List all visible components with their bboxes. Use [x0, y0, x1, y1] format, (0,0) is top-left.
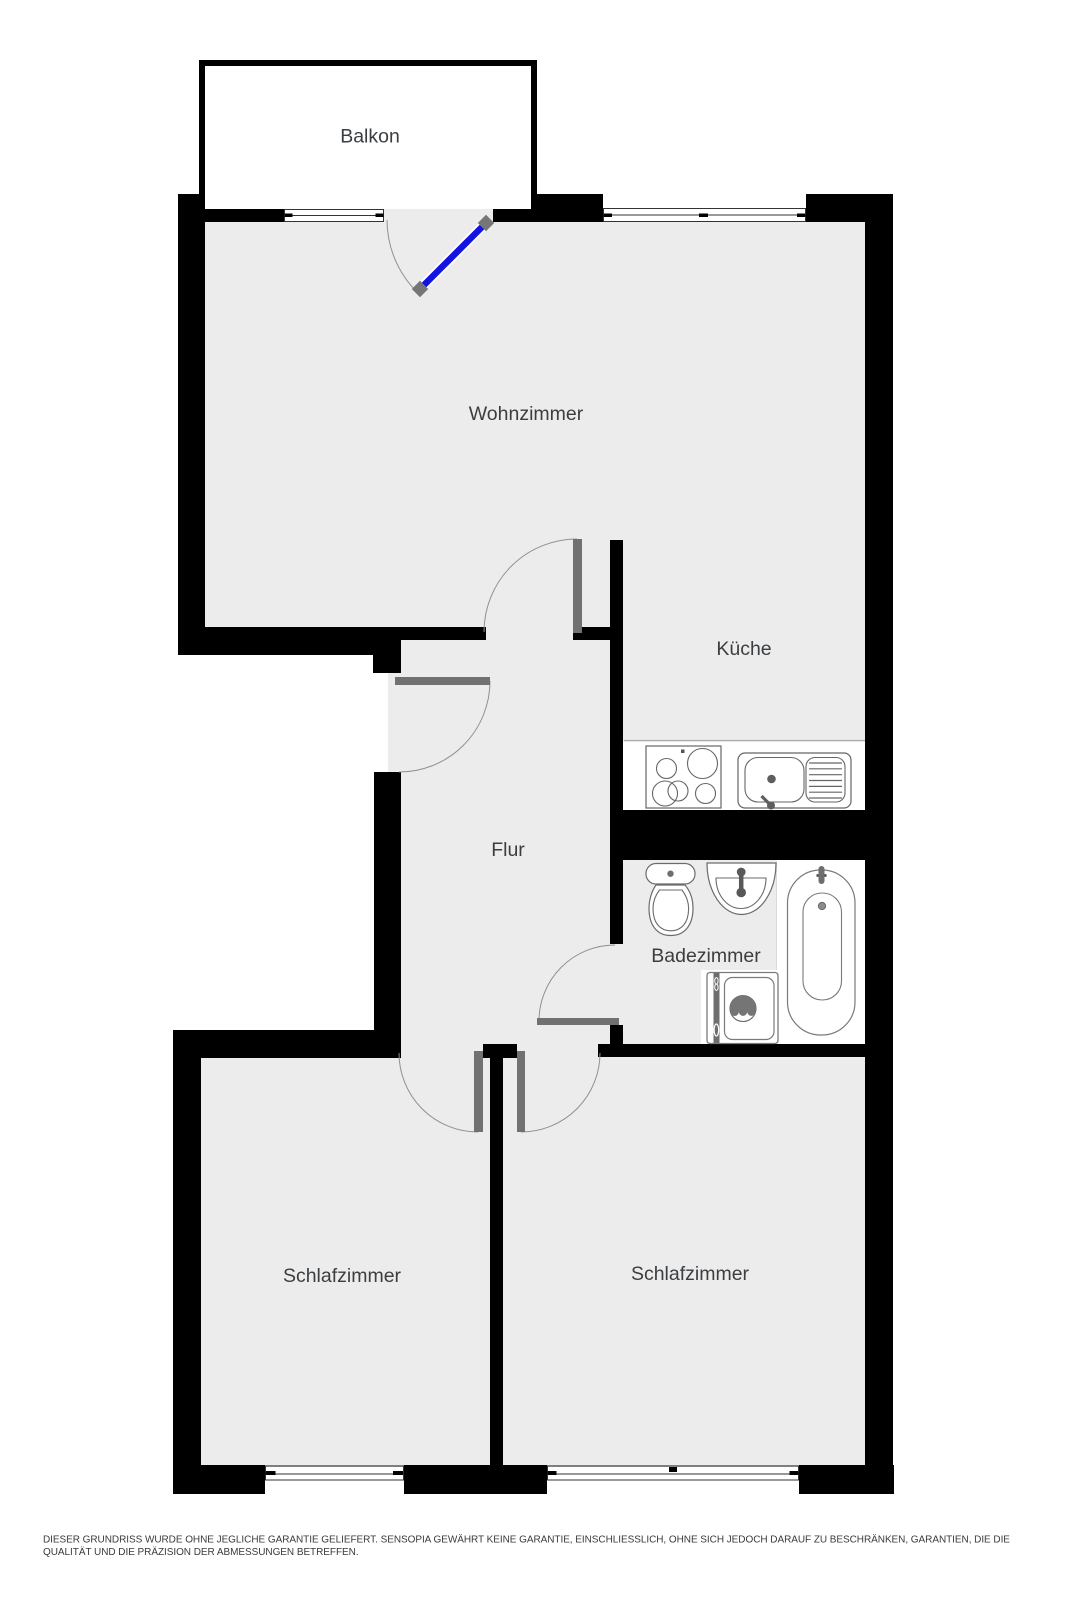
svg-text:Badezimmer: Badezimmer	[651, 945, 761, 967]
svg-text:Schlafzimmer: Schlafzimmer	[283, 1265, 402, 1287]
svg-text:Küche: Küche	[716, 638, 771, 660]
svg-text:Schlafzimmer: Schlafzimmer	[631, 1263, 750, 1285]
svg-text:QUALITÄT UND DIE PRÄZISION DER: QUALITÄT UND DIE PRÄZISION DER ABMESSUNG…	[43, 1546, 359, 1558]
svg-text:Flur: Flur	[491, 839, 525, 861]
svg-text:DIESER GRUNDRISS WURDE OHNE JE: DIESER GRUNDRISS WURDE OHNE JEGLICHE GAR…	[43, 1534, 1010, 1546]
svg-text:Wohnzimmer: Wohnzimmer	[469, 403, 584, 425]
svg-text:Balkon: Balkon	[340, 126, 400, 148]
